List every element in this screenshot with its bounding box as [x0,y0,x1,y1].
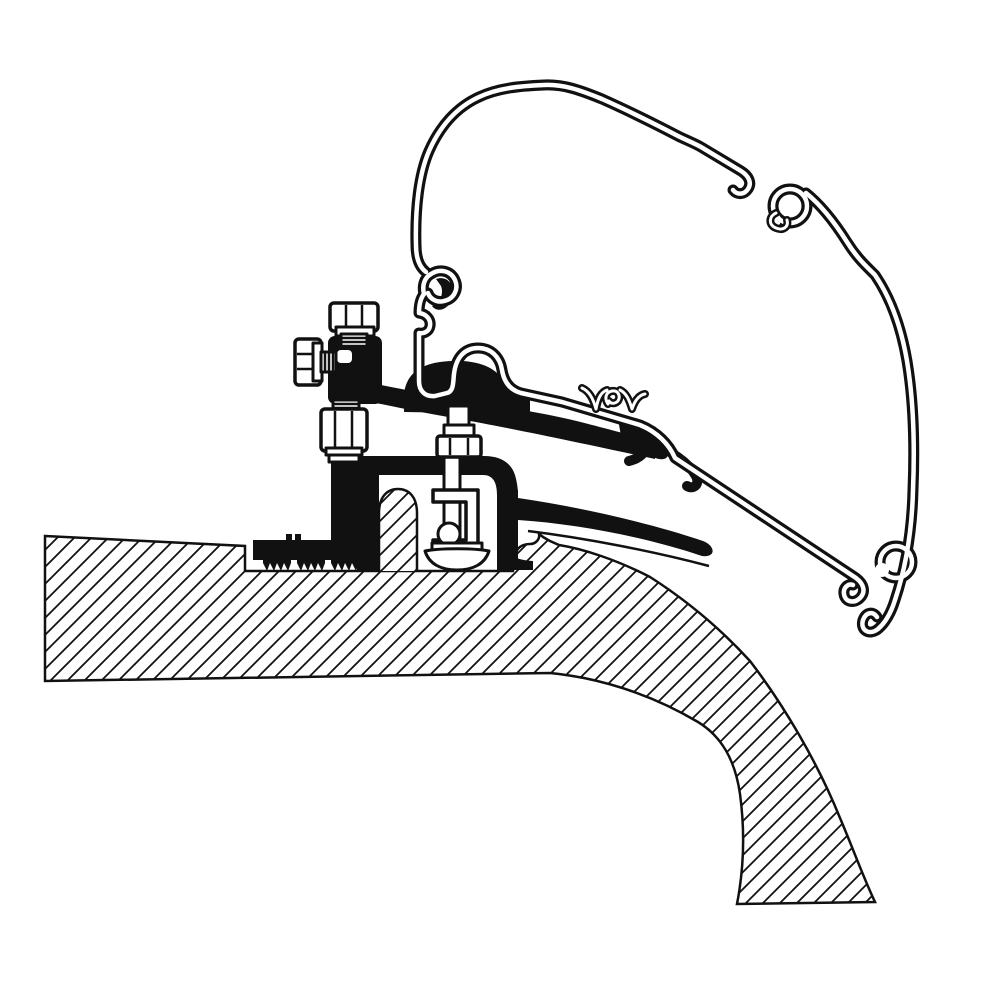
base-bump-1 [286,534,292,542]
clamp-left-wall [357,456,379,570]
technical-diagram-canvas [0,0,1000,1000]
bracket-post [331,458,359,546]
roof-body-hatched [45,534,875,904]
awning-adapter-cross-section [0,0,1000,1000]
serrated-foot-2 [297,554,325,571]
awning-rail-profile [416,85,914,632]
washer-lower [329,455,359,462]
top-bolt-thread-lines [341,338,367,346]
rail-right-core [806,193,914,632]
base-bump-2 [295,534,301,542]
serrated-foot-1 [263,554,291,571]
clamp-bolt-nut [437,436,481,457]
block-slot-highlight [337,350,352,363]
rail-left-top-core [416,85,750,272]
bottom-c-hook-opening [875,563,889,577]
serrated-foot-3 [331,554,359,571]
lock-nut [321,409,367,451]
side-bolt-thread-lines [325,352,333,372]
rail-left-top-outline [416,85,750,272]
foot-saucer [425,549,489,570]
roof-rib-hatched [379,489,417,571]
